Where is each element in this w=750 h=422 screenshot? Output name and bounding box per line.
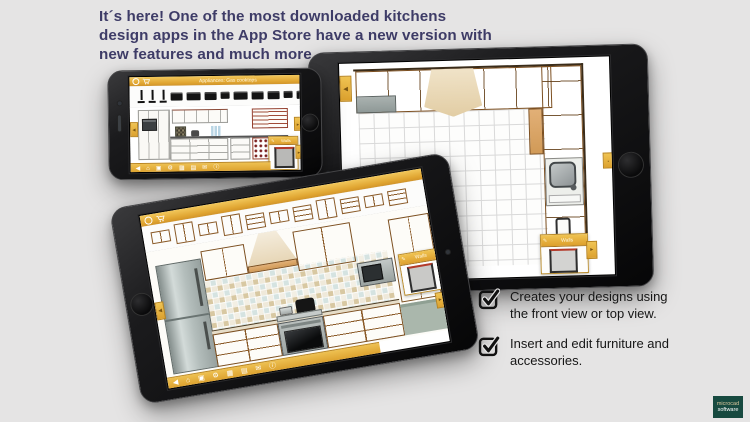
list-icon[interactable]: ▤: [191, 165, 197, 171]
cabinet-thumbnail[interactable]: [221, 213, 243, 236]
fridge-door-split: [165, 313, 209, 322]
checklist-item-text: Insert and edit furniture and accessorie…: [510, 335, 688, 369]
appliance-thumbnail[interactable]: [268, 91, 280, 99]
phone-toolbar[interactable]: ◀⌂▣⚙▦▤✉ⓘ: [131, 161, 271, 172]
promo-canvas: It´s here! One of the most downloaded ki…: [0, 0, 750, 422]
tablet-home-button[interactable]: [130, 292, 154, 316]
phone-screen: Appliances: Gas cooktops: [129, 75, 300, 172]
oven-door: [284, 325, 324, 353]
camera-icon[interactable]: ▣: [156, 165, 162, 171]
list-item: Insert and edit furniture and accessorie…: [478, 335, 688, 369]
gallery-icon[interactable]: ▦: [226, 370, 234, 378]
back-tab-icon[interactable]: ◀: [172, 379, 178, 387]
cabinet-thumbnail[interactable]: [150, 229, 171, 244]
list-icon[interactable]: ▤: [241, 367, 249, 375]
appliance-thumbnail[interactable]: [252, 91, 264, 99]
back-icon[interactable]: [144, 215, 153, 224]
phone-camera-icon: [118, 101, 122, 105]
wall-art: [175, 126, 186, 136]
camera-icon[interactable]: ▣: [198, 374, 206, 382]
item-preview: [274, 147, 294, 168]
cabinet-thumbnail[interactable]: [315, 197, 337, 220]
tablet-camera-icon: [446, 250, 451, 255]
share-icon[interactable]: ✉: [255, 365, 262, 373]
appliance-thumbnail[interactable]: [234, 91, 248, 99]
gallery-icon[interactable]: ▦: [179, 165, 185, 171]
cabinet-thumbnail[interactable]: [340, 196, 361, 214]
tablet-front-view: ✎ Walls ► ◀⌂▣⚙▦▤✉ⓘ ◀: [109, 152, 480, 405]
appliance-thumbnail[interactable]: [160, 90, 167, 103]
appliance-thumbnail[interactable]: [221, 92, 230, 99]
back-tab-icon[interactable]: ◀: [136, 166, 141, 172]
dishwasher-top-view: [356, 95, 396, 113]
edge-bookmark-icon[interactable]: ▪: [603, 152, 614, 168]
appliance-thumbnail[interactable]: [171, 92, 183, 100]
walls-panel[interactable]: ✎ Walls: [398, 248, 443, 296]
walls-panel[interactable]: ✎ Walls: [540, 233, 589, 274]
tall-cabinet: [138, 110, 171, 160]
settings-icon[interactable]: ⚙: [212, 372, 219, 380]
phone-speaker-icon: [118, 115, 121, 131]
home-icon[interactable]: ⌂: [186, 377, 191, 385]
tablet-home-button[interactable]: [619, 152, 644, 177]
appliance-thumbnail[interactable]: [284, 91, 293, 98]
cabinet-thumbnail[interactable]: [245, 212, 266, 230]
page-back-tab[interactable]: ◀: [130, 122, 138, 137]
walls-panel-title: Walls: [549, 237, 585, 244]
list-item: Creates your designs using the front vie…: [478, 288, 688, 322]
microwave-window: [361, 263, 383, 282]
info-icon[interactable]: ⓘ: [213, 164, 219, 170]
back-icon[interactable]: [132, 78, 139, 85]
cart-icon[interactable]: [142, 78, 150, 85]
tablet-front-view-screen: ✎ Walls ► ◀⌂▣⚙▦▤✉ⓘ ◀: [140, 168, 450, 388]
panel-arrow-tab[interactable]: ►: [435, 291, 447, 308]
panel-arrow-tab[interactable]: ►: [295, 145, 300, 159]
cabinet-thumbnail[interactable]: [198, 221, 219, 236]
info-icon[interactable]: ⓘ: [269, 362, 277, 370]
microcad-software-logo: microcad software: [713, 396, 743, 418]
base-cabinets-left: [170, 138, 228, 161]
checklist-item-text: Creates your designs using the front vie…: [510, 288, 688, 322]
built-in-oven: [142, 119, 157, 131]
page-back-tab[interactable]: ◀: [339, 76, 352, 102]
pencil-icon: ✎: [271, 138, 274, 143]
pencil-icon: ✎: [543, 238, 547, 244]
room-preview: [549, 248, 578, 273]
oven: [277, 316, 328, 356]
feature-checklist: Creates your designs using the front vie…: [478, 288, 688, 383]
counter-corner-step: [528, 108, 543, 154]
sink-cabinet-line: [549, 194, 581, 203]
checkbox-checked-icon: [478, 335, 500, 357]
cabinet-thumbnail[interactable]: [292, 204, 313, 222]
walls-panel-title: Walls: [277, 138, 296, 143]
appliance-thumbnail[interactable]: [187, 92, 201, 100]
sink-unit: [545, 157, 584, 206]
checkbox-checked-icon: [478, 288, 500, 310]
logo-line2: software: [718, 407, 739, 413]
cabinet-thumbnail[interactable]: [363, 193, 384, 208]
bottles: [211, 126, 221, 136]
base-cabinets-mid: [230, 138, 250, 160]
fridge-handle: [194, 268, 203, 306]
phone-front-view: Appliances: Gas cooktops: [107, 68, 323, 181]
appliance-thumbnail[interactable]: [149, 90, 156, 103]
fridge-handle: [203, 321, 210, 349]
upper-cabinets: [172, 109, 228, 124]
panel-arrow-tab[interactable]: ►: [586, 241, 597, 259]
cart-icon[interactable]: [156, 213, 166, 222]
phone-home-button[interactable]: [302, 115, 318, 131]
home-icon[interactable]: ⌂: [146, 165, 150, 171]
wine-rack: [252, 108, 288, 129]
cabinet-thumbnail[interactable]: [173, 221, 195, 244]
item-preview: [407, 263, 437, 293]
share-icon[interactable]: ✉: [202, 165, 207, 171]
page-next-tab[interactable]: ►: [294, 117, 301, 131]
appliance-thumbnail[interactable]: [205, 91, 217, 99]
walls-panel[interactable]: ✎ Walls: [268, 136, 298, 170]
sink-faucet-icon: [570, 184, 576, 190]
cabinet-thumbnail[interactable]: [387, 188, 408, 206]
settings-icon[interactable]: ⚙: [167, 165, 172, 171]
appliance-thumbnail[interactable]: [297, 90, 301, 98]
pencil-icon: ✎: [401, 256, 406, 263]
appliance-thumbnail[interactable]: [138, 90, 145, 103]
cabinet-thumbnail[interactable]: [269, 209, 290, 224]
